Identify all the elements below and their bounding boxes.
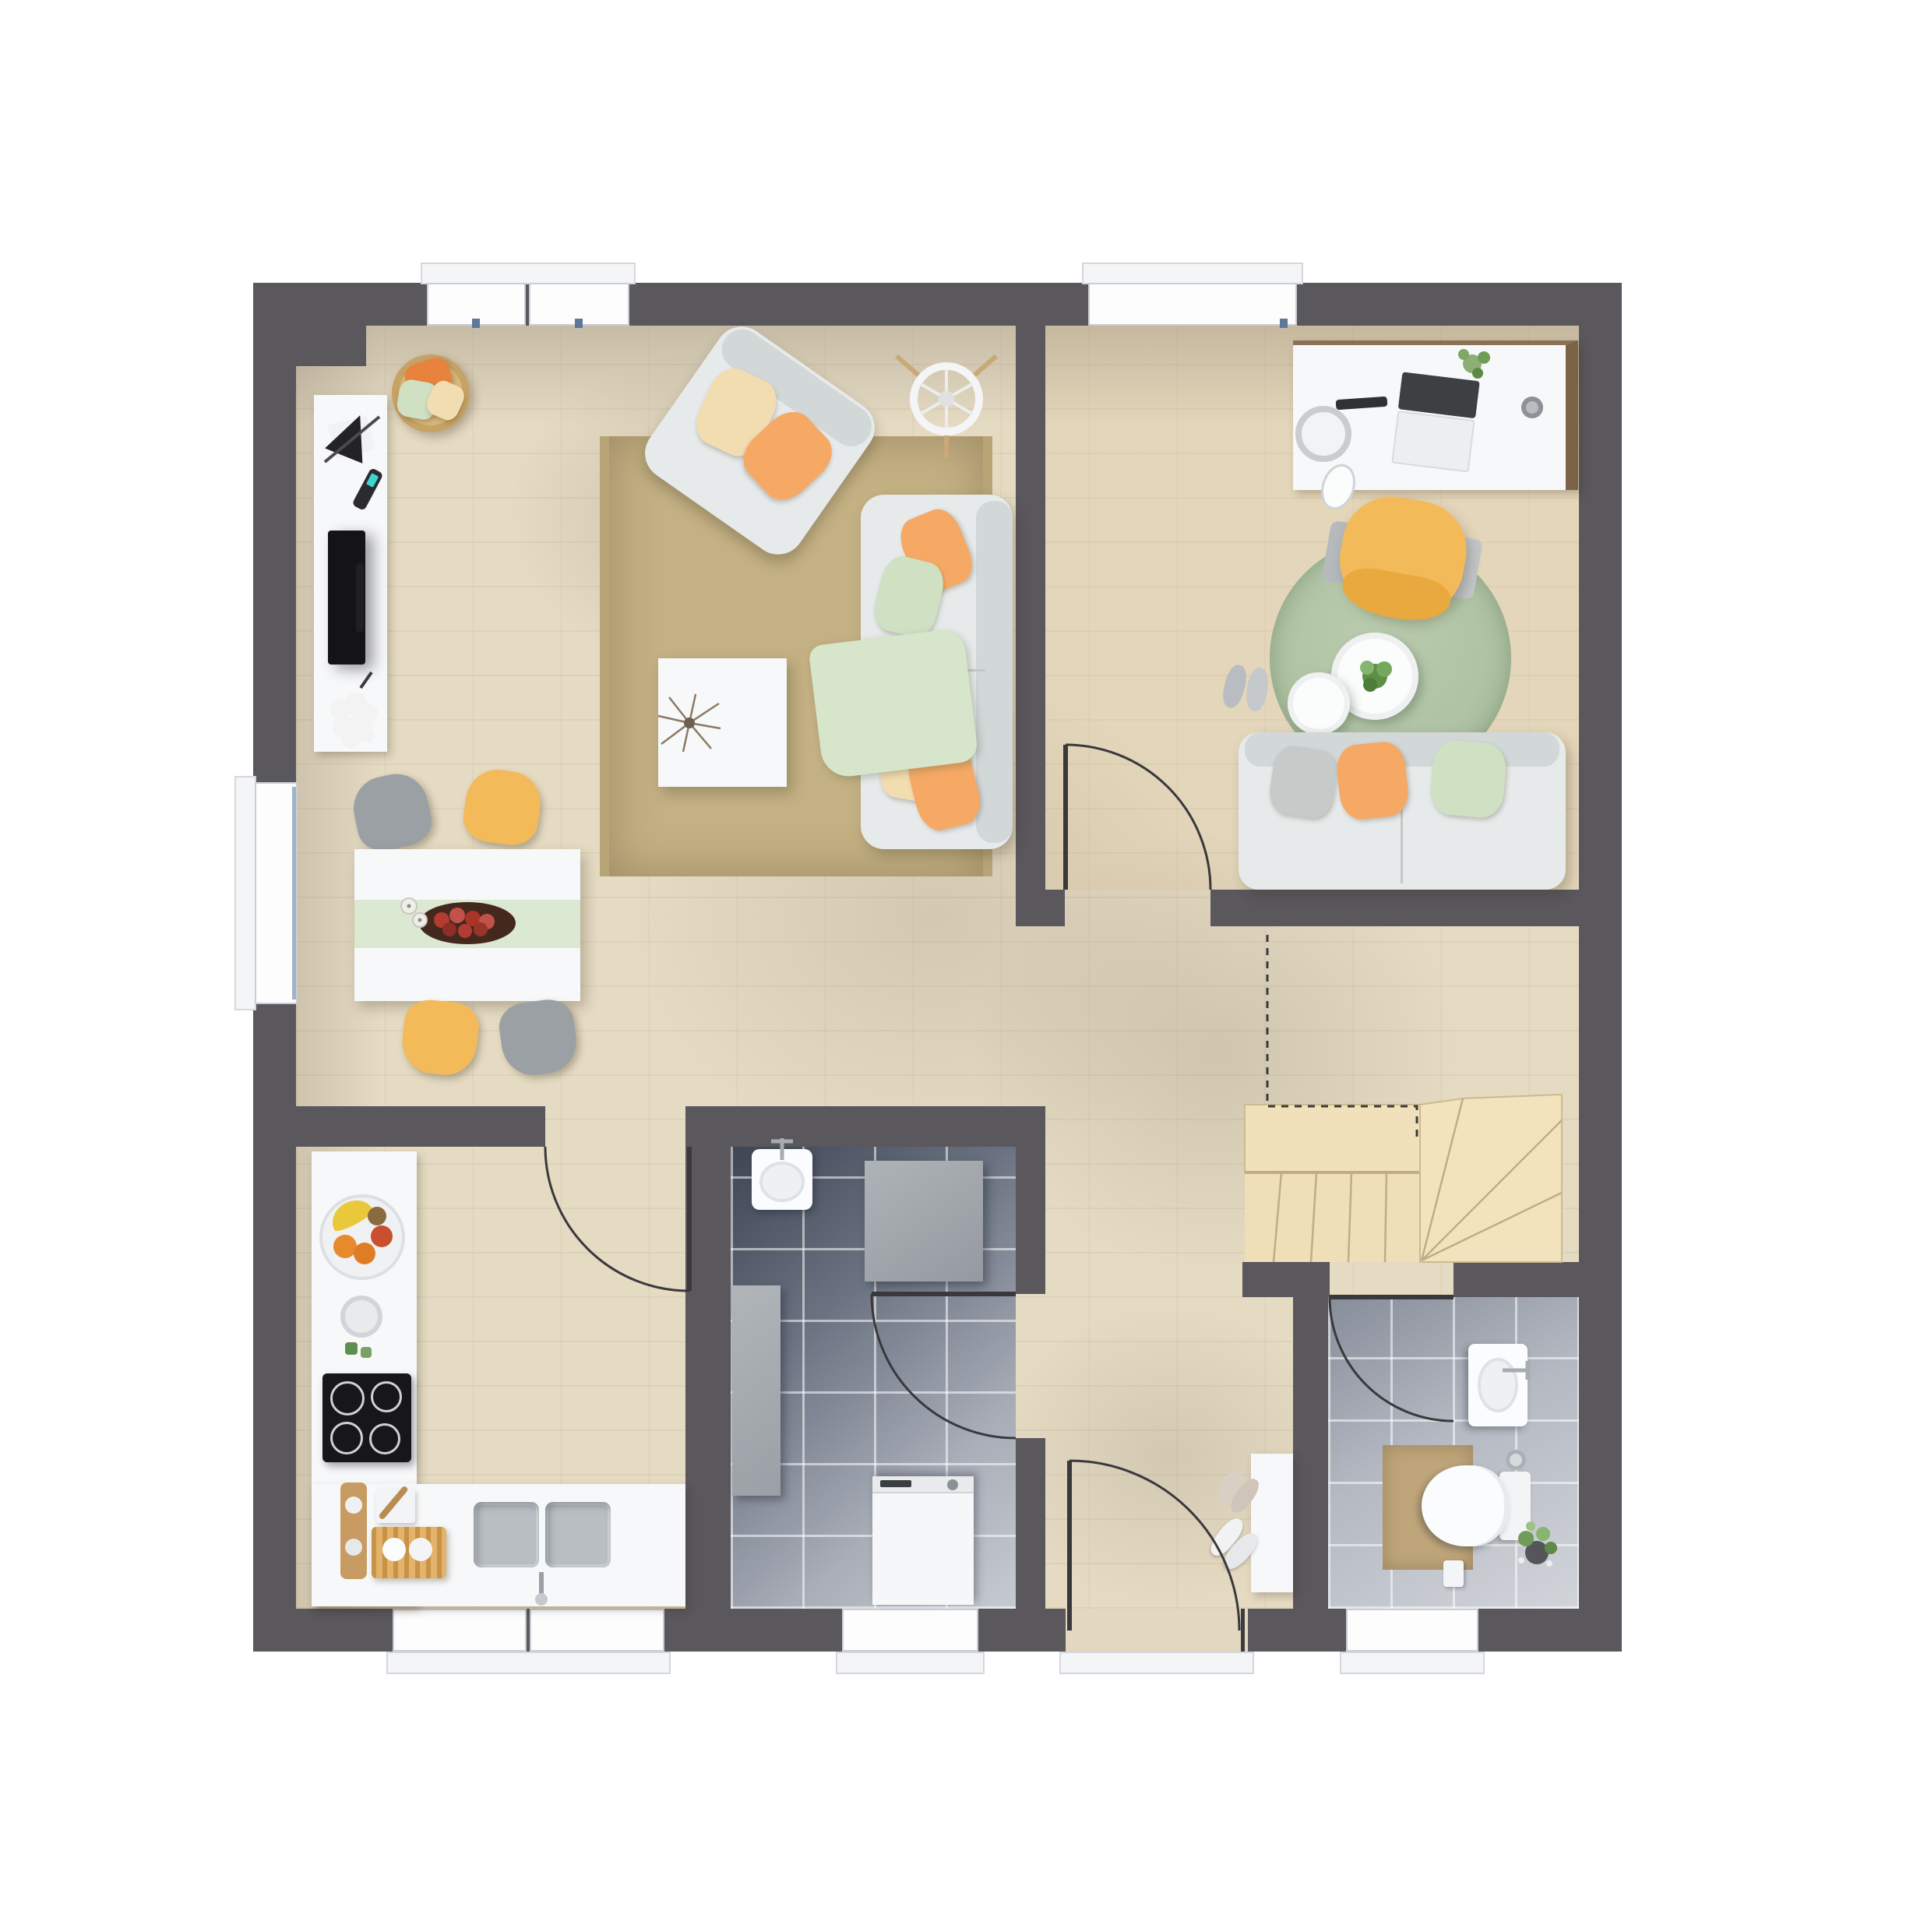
cooktop <box>322 1373 411 1462</box>
wc-window-glass <box>1346 1609 1478 1652</box>
toilet-brush <box>1506 1450 1526 1470</box>
cup <box>382 1538 406 1561</box>
toilet <box>1422 1465 1531 1546</box>
shell-dish <box>345 1539 362 1556</box>
entrance-door-frame <box>1241 1609 1245 1652</box>
burner <box>330 1381 365 1416</box>
laptop-keyboard <box>1391 411 1475 473</box>
deco-bowl <box>340 1296 382 1338</box>
floorplan-page <box>0 0 1931 1932</box>
utility-window <box>842 1609 978 1674</box>
kitchen-window-sill <box>386 1652 671 1674</box>
sofa <box>861 495 1013 849</box>
office-window-glass <box>1088 283 1297 326</box>
bathroom-sink-bowl <box>759 1162 805 1202</box>
utility-window-glass <box>842 1609 978 1652</box>
wall-bathroom-right-lower <box>1016 1438 1045 1609</box>
office-sofa <box>1239 732 1566 890</box>
wall-dining-kitchen <box>296 1106 545 1147</box>
fruit-plate <box>319 1194 405 1280</box>
wc-sink <box>1468 1344 1528 1426</box>
terrace-door-sill <box>234 776 256 1010</box>
dish-rack <box>372 1527 446 1578</box>
office-window-sill <box>1082 263 1303 284</box>
side-table-small <box>1288 672 1350 735</box>
office-window <box>1088 263 1297 326</box>
office-chair <box>1330 488 1474 633</box>
wall-wc-left <box>1293 1297 1328 1609</box>
laptop <box>1391 372 1480 472</box>
office-sofa-pillow-orange <box>1334 740 1411 822</box>
washer-display <box>880 1480 911 1487</box>
washing-machine <box>872 1476 974 1605</box>
utility-window-sill <box>836 1652 985 1674</box>
wall-wc-top <box>1454 1262 1579 1297</box>
headphones <box>1295 406 1351 462</box>
spice-bottles <box>361 1347 372 1358</box>
wall-bathroom-right-upper <box>1016 1147 1045 1294</box>
kiwi-fruit <box>368 1207 386 1225</box>
spice-bottles <box>345 1342 358 1355</box>
wall-corner-block <box>296 326 366 366</box>
bathroom-sink <box>752 1149 812 1210</box>
window-handle <box>472 319 480 328</box>
kitchen-window-glass2 <box>530 1609 664 1652</box>
wall-living-office-divider <box>1016 326 1045 890</box>
kitchen-window <box>393 1609 664 1674</box>
laundry-basket <box>392 354 470 432</box>
office-sofa-pillow-sage <box>1429 739 1508 820</box>
coffee-table <box>658 658 787 787</box>
wall-bathroom-top <box>685 1106 1045 1147</box>
dish-towel <box>376 1489 415 1523</box>
wc-sink-bowl <box>1478 1358 1518 1412</box>
shoe-cabinet <box>1251 1454 1293 1592</box>
washer-knob <box>947 1479 958 1490</box>
living-window <box>427 263 629 326</box>
office-sofa-pillow-gray <box>1267 744 1339 821</box>
entrance-opening <box>1066 1609 1248 1676</box>
desk-jar <box>1521 397 1543 418</box>
living-window-sill <box>421 263 636 284</box>
remote-buttons <box>366 473 379 488</box>
terrace-door-frame <box>292 787 296 999</box>
wall-divider-stub <box>1016 890 1065 926</box>
wall-office-bottom <box>1210 890 1579 926</box>
shell-dish <box>345 1497 362 1514</box>
sink-basin-right <box>545 1502 611 1567</box>
wc-window <box>1346 1609 1478 1674</box>
double-sink <box>467 1497 615 1572</box>
entrance-sill <box>1059 1652 1254 1674</box>
shower-box <box>865 1161 983 1282</box>
window-handle <box>575 319 583 328</box>
sofa-throw-blanket <box>808 627 978 779</box>
cutting-board <box>340 1482 367 1579</box>
wc-window-sill <box>1340 1652 1485 1674</box>
wall-bathroom-left <box>685 1147 731 1609</box>
orange-fruit <box>354 1243 375 1264</box>
entrance-threshold <box>1066 1609 1248 1652</box>
wall-under-stairs <box>1242 1262 1330 1297</box>
sink-basin-left <box>474 1502 539 1567</box>
table-runner <box>354 900 580 948</box>
kitchen-window-glass <box>393 1609 527 1652</box>
toilet-paper <box>1443 1560 1464 1587</box>
sofa-backrest <box>976 501 1013 843</box>
toilet-bowl <box>1422 1465 1509 1546</box>
wooden-spoon <box>378 1486 409 1521</box>
burner <box>371 1381 402 1412</box>
burner <box>369 1423 400 1454</box>
tall-cabinet <box>732 1285 781 1496</box>
cup <box>409 1538 432 1561</box>
burner <box>330 1422 363 1454</box>
apple-fruit <box>371 1225 393 1247</box>
terrace-door-glass <box>255 782 298 1004</box>
tv-stand-bar <box>356 563 364 632</box>
terrace-door <box>234 782 298 1004</box>
floor-plan <box>253 283 1622 1652</box>
window-handle <box>1280 319 1288 328</box>
